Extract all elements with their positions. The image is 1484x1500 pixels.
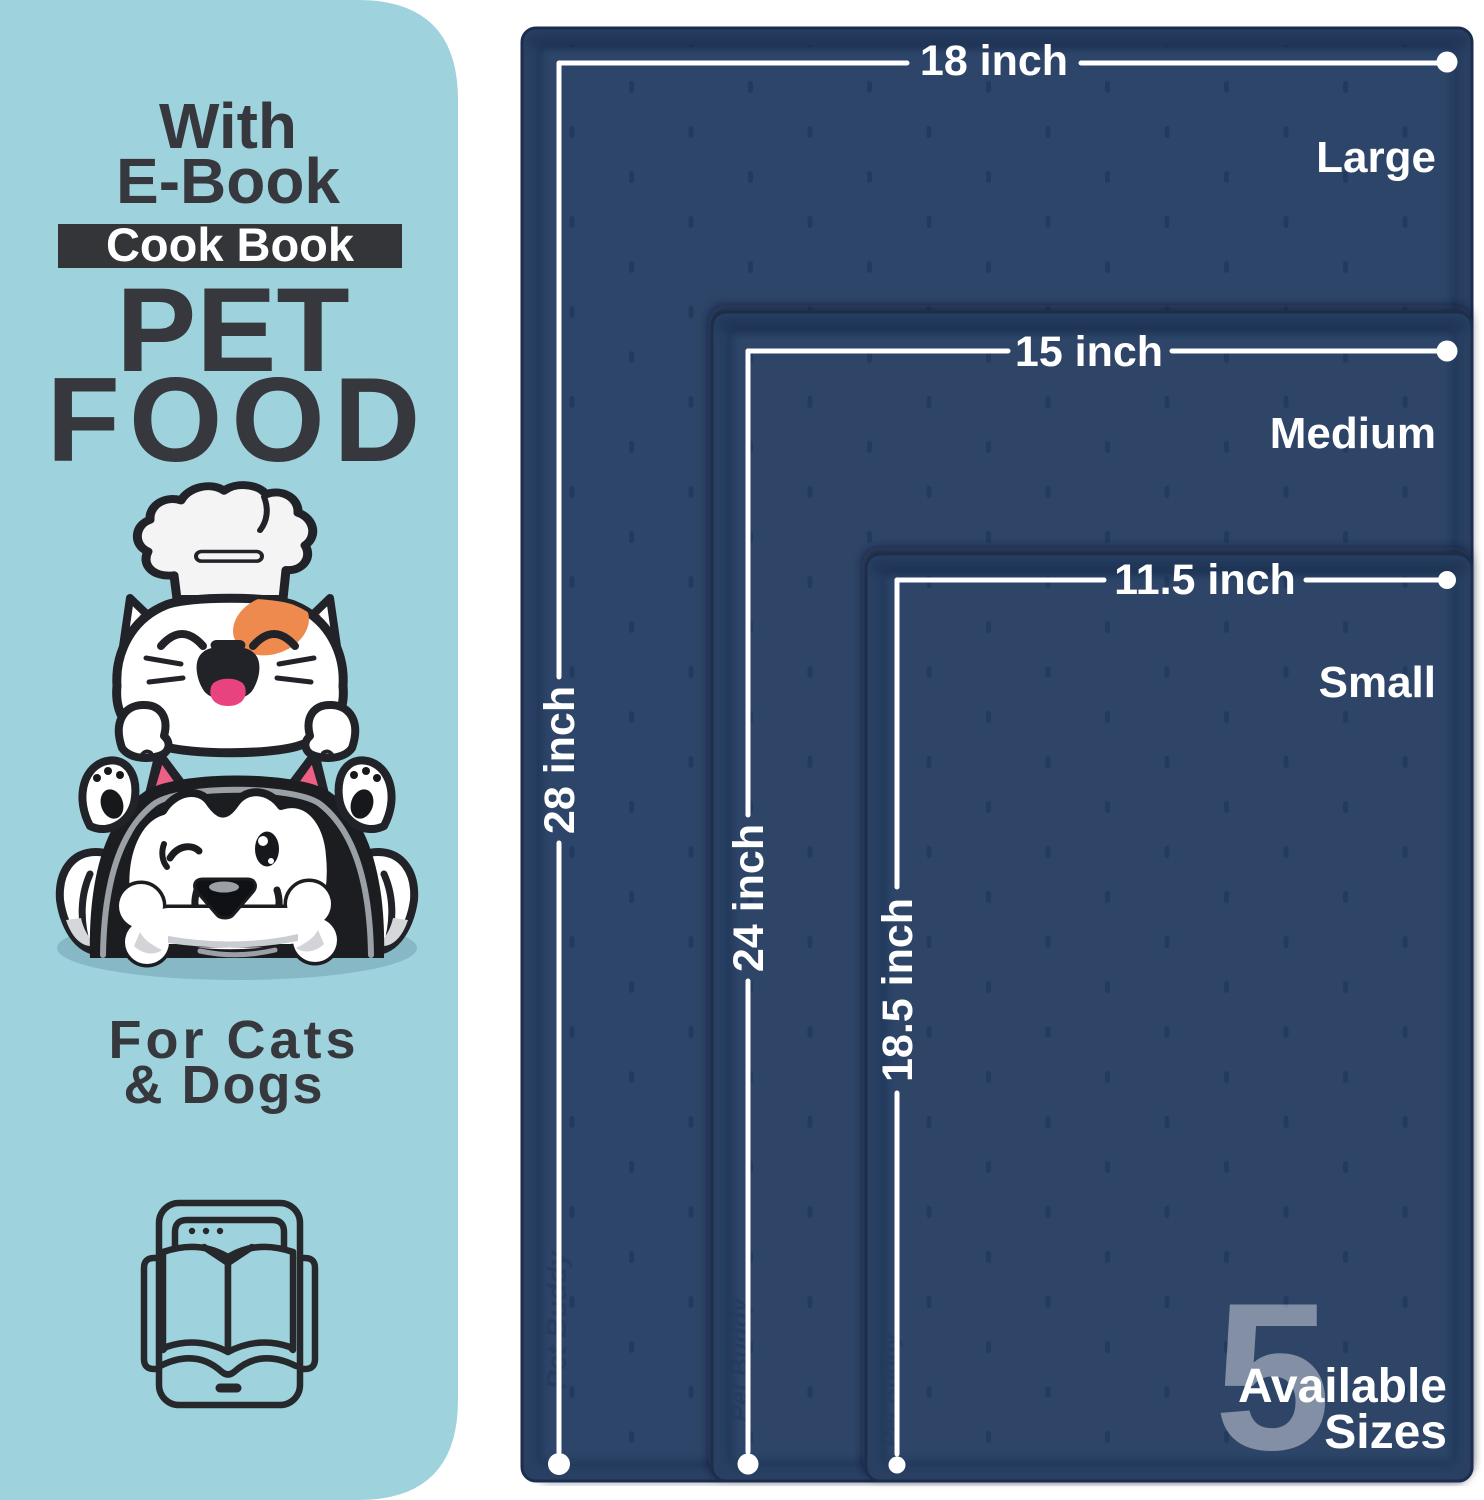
svg-text:E-Book: E-Book: [116, 145, 340, 217]
svg-text:& Dogs: & Dogs: [124, 1055, 325, 1115]
svg-text:28 inch: 28 inch: [536, 686, 584, 834]
svg-text:11.5 inch: 11.5 inch: [1114, 556, 1296, 604]
svg-text:Sizes: Sizes: [1324, 1406, 1447, 1459]
svg-text:18 inch: 18 inch: [920, 37, 1068, 85]
svg-text:24 inch: 24 inch: [725, 824, 773, 972]
svg-text:18.5 inch: 18.5 inch: [874, 898, 922, 1082]
svg-text:Small: Small: [1319, 658, 1436, 707]
svg-text:FOOD: FOOD: [47, 353, 430, 487]
svg-text:15 inch: 15 inch: [1015, 328, 1163, 376]
svg-text:Large: Large: [1316, 133, 1436, 182]
svg-text:Medium: Medium: [1270, 409, 1436, 458]
